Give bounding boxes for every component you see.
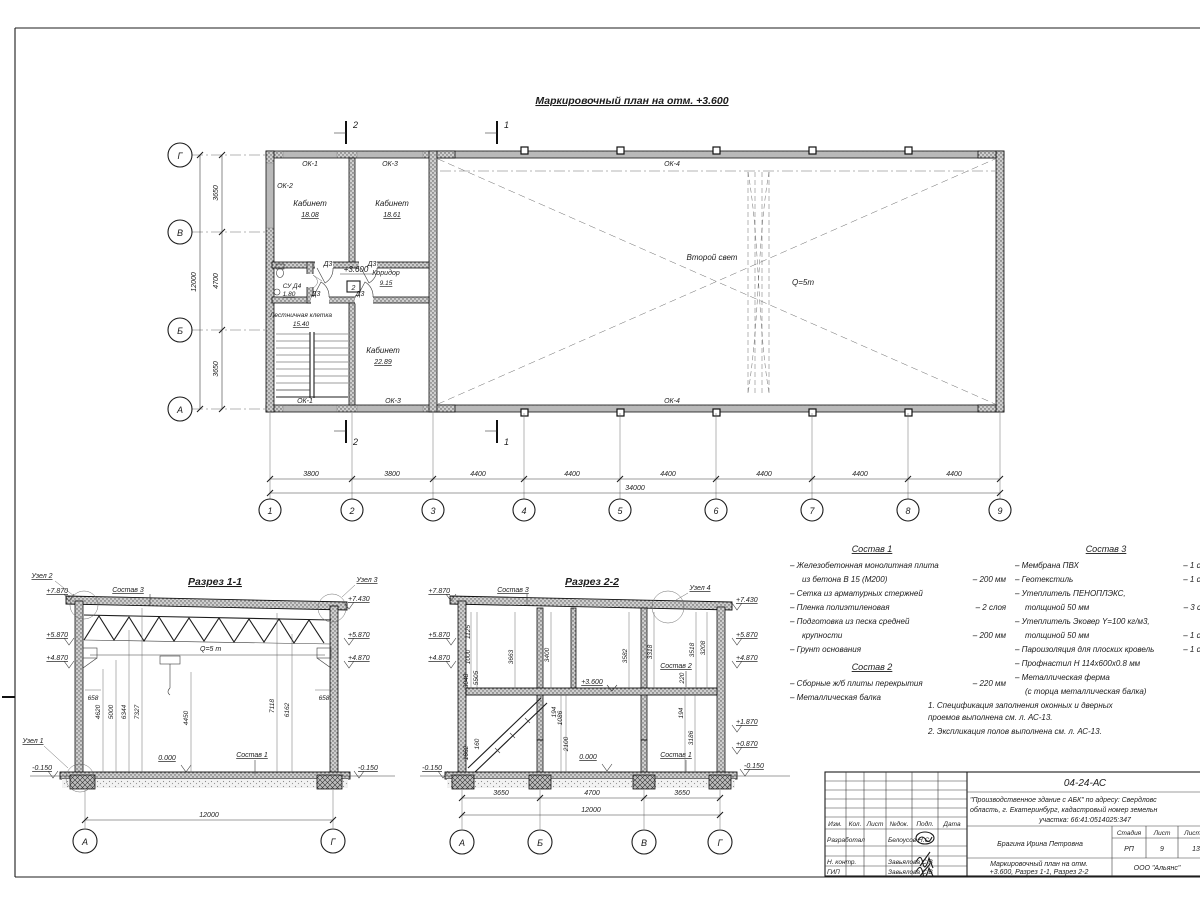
svg-text:2: 2 — [352, 120, 358, 130]
sec2-stairs — [468, 698, 547, 773]
svg-text:5505: 5505 — [473, 670, 480, 685]
svg-text:Коридор: Коридор — [372, 269, 400, 277]
sheets-header: Листов — [1183, 830, 1200, 837]
sec1-bottom-axes: 12000 А Г — [73, 790, 345, 853]
svg-text:1. Спецификация заполнения око: 1. Спецификация заполнения оконных и две… — [928, 701, 1114, 710]
svg-text:– Сборные ж/б плиты перекрытия: – Сборные ж/б плиты перекрытия — [789, 679, 923, 688]
sostav1-ref: Состав 1 — [236, 752, 268, 759]
col-data: Дата — [942, 821, 961, 828]
svg-text:18.08: 18.08 — [301, 212, 319, 219]
svg-text:+7.430: +7.430 — [348, 596, 370, 603]
svg-text:3208: 3208 — [700, 640, 707, 655]
svg-text:194: 194 — [678, 707, 685, 718]
role-gip: ГИП — [827, 869, 840, 876]
svg-text:– Пленка полиэтиленовая: – Пленка полиэтиленовая — [789, 603, 890, 612]
svg-text:+5.870: +5.870 — [428, 632, 450, 639]
svg-text:3650: 3650 — [213, 361, 220, 377]
svg-text:+4.870: +4.870 — [736, 655, 758, 662]
svg-text:– 220 мм: – 220 мм — [972, 679, 1007, 688]
col-kol: Кол. — [849, 821, 862, 828]
svg-text:3048: 3048 — [463, 673, 470, 688]
svg-text:658: 658 — [88, 695, 99, 702]
window-labels: ОК-1 ОК-3 ОК-2 ОК-4 ОК-1 ОК-3 ОК-4 — [277, 161, 680, 405]
svg-text:4700: 4700 — [213, 273, 220, 289]
section-mark-1-top: 1 — [485, 120, 509, 144]
svg-text:– Мембрана ПВХ: – Мембрана ПВХ — [1014, 561, 1080, 570]
svg-text:3518: 3518 — [689, 642, 696, 657]
svg-text:4: 4 — [521, 506, 526, 516]
axis-bubbles: 1 2 3 4 5 6 7 8 9 — [259, 499, 1011, 521]
svg-text:+5.870: +5.870 — [46, 632, 68, 639]
sec2-levels-left: +7.870 +5.870 +4.870 -0.150 — [422, 588, 456, 778]
plan-walls — [266, 151, 1004, 412]
sostav3-ref: Состав 3 — [112, 587, 144, 594]
spec-sostav-1: Состав 1 – Железобетонная монолитная пли… — [789, 544, 1007, 654]
svg-text:3318: 3318 — [647, 644, 654, 659]
svg-text:9.15: 9.15 — [380, 280, 393, 287]
project-line2: область, г. Екатеринбург, кадастровый но… — [970, 806, 1158, 814]
svg-text:Кабинет: Кабинет — [293, 199, 327, 208]
svg-text:Состав 1: Состав 1 — [660, 752, 692, 759]
svg-text:-0.150: -0.150 — [358, 765, 378, 772]
svg-text:А: А — [176, 405, 183, 415]
section-mark-2-top: 2 — [334, 120, 358, 144]
crane-beam: Q=5 т — [83, 646, 331, 695]
svg-text:– Металлическая ферма: – Металлическая ферма — [1014, 673, 1110, 682]
second-light-label: Второй свет — [687, 253, 738, 262]
role-developer: Разработал — [827, 836, 865, 844]
svg-text:– Пароизоляция для плоских кро: – Пароизоляция для плоских кровель — [1014, 645, 1154, 654]
svg-text:160: 160 — [474, 738, 481, 749]
svg-text:4400: 4400 — [660, 471, 676, 478]
svg-text:– 2 слоя: – 2 слоя — [975, 603, 1007, 612]
svg-text:6162: 6162 — [284, 702, 291, 717]
svg-text:ОК-1: ОК-1 — [297, 398, 313, 405]
svg-text:+5.870: +5.870 — [736, 632, 758, 639]
column-markers — [521, 147, 912, 416]
svg-text:проемов выполнена см. л. АС-13: проемов выполнена см. л. АС-13. — [928, 713, 1053, 722]
svg-text:2: 2 — [352, 437, 358, 447]
svg-text:+7.870: +7.870 — [46, 588, 68, 595]
stage-value: РП — [1124, 846, 1135, 853]
svg-text:4400: 4400 — [946, 471, 962, 478]
crane-capacity-label: Q=5т — [792, 278, 814, 287]
svg-text:12000: 12000 — [581, 807, 601, 814]
crane-label: Q=5 т — [200, 646, 221, 653]
svg-text:6344: 6344 — [121, 704, 128, 719]
mezzanine-slab — [466, 688, 717, 695]
svg-text:+4.870: +4.870 — [46, 655, 68, 662]
svg-text:1: 1 — [267, 506, 272, 516]
svg-text:+7.870: +7.870 — [428, 588, 450, 595]
svg-text:Д3: Д3 — [355, 291, 365, 298]
svg-text:8: 8 — [905, 506, 910, 516]
drawing-canvas: Маркировочный план на отм. +3.600 2 1 2 … — [0, 0, 1200, 900]
svg-text:– Подготовка из песка средней: – Подготовка из песка средней — [789, 617, 910, 626]
doc-title-line2: +3.600, Разрез 1-1, Разрез 2-2 — [990, 869, 1089, 876]
svg-text:3186: 3186 — [688, 730, 695, 745]
svg-text:ОК-4: ОК-4 — [664, 398, 680, 405]
svg-text:1: 1 — [504, 120, 509, 130]
svg-text:Лестничная клетка: Лестничная клетка — [269, 312, 332, 319]
svg-text:4400: 4400 — [756, 471, 772, 478]
svg-text:1.80: 1.80 — [283, 291, 296, 298]
svg-text:7327: 7327 — [134, 704, 141, 719]
spec2-title: Состав 2 — [852, 662, 893, 672]
svg-text:А: А — [81, 837, 88, 847]
svg-text:34000: 34000 — [625, 485, 645, 492]
spec3-title: Состав 3 — [1086, 544, 1127, 554]
svg-text:1086: 1086 — [557, 710, 564, 725]
svg-text:+1.870: +1.870 — [736, 719, 758, 726]
svg-text:4700: 4700 — [584, 790, 600, 797]
section-2-2: Разрез 2-2 Узел 4 Состав 3 Состав 2 Сост… — [420, 576, 790, 854]
svg-text:2100: 2100 — [563, 736, 570, 752]
svg-text:4620: 4620 — [95, 704, 102, 719]
svg-text:7118: 7118 — [269, 699, 276, 713]
svg-text:– 1 слой: – 1 слой — [1182, 561, 1200, 570]
section-1-1: Разрез 1-1 Q=5 т Узел 2 Узел 3 Узел 1 — [21, 573, 395, 853]
svg-text:– Грунт основания: – Грунт основания — [789, 645, 862, 654]
plan-level-mark: +3.600 2 — [340, 265, 374, 292]
svg-text:ОК-4: ОК-4 — [664, 161, 680, 168]
svg-text:Г: Г — [331, 837, 337, 847]
svg-text:– Утеплитель Эковер Y=100 кг/м: – Утеплитель Эковер Y=100 кг/м3, — [1014, 617, 1150, 626]
document-code: 04-24-АС — [1064, 778, 1107, 789]
spec-sostav-2: Состав 2 – Сборные ж/б плиты перекрытия … — [789, 662, 1007, 702]
svg-text:Б: Б — [177, 326, 183, 336]
svg-text:– 3 слоя: – 3 слоя — [1183, 603, 1200, 612]
svg-text:Состав 2: Состав 2 — [660, 663, 692, 670]
svg-text:крупности: крупности — [802, 631, 843, 640]
roof-slab-2 — [450, 596, 732, 610]
svg-text:2. Экспликация полов выполнена: 2. Экспликация полов выполнена см. л. АС… — [927, 727, 1102, 736]
svg-text:15.40: 15.40 — [293, 321, 310, 328]
svg-text:Г: Г — [178, 151, 184, 161]
svg-text:12000: 12000 — [199, 812, 219, 819]
svg-text:3650: 3650 — [674, 790, 690, 797]
spec-sostav-3: Состав 3 – Мембрана ПВХ – 1 слой – Геоте… — [1014, 544, 1200, 696]
svg-text:3800: 3800 — [303, 471, 319, 478]
project-line1: "Производственное здание с АБК" по адрес… — [970, 796, 1157, 804]
svg-text:ОК-3: ОК-3 — [385, 398, 401, 405]
svg-text:6: 6 — [713, 506, 718, 516]
svg-text:3650: 3650 — [213, 185, 220, 201]
svg-text:А: А — [458, 838, 465, 848]
svg-text:Состав 3: Состав 3 — [497, 587, 529, 594]
svg-text:18.61: 18.61 — [383, 212, 401, 219]
role-ncontrol: Н. контр. — [827, 859, 857, 866]
svg-text:– 200 мм: – 200 мм — [972, 575, 1007, 584]
svg-text:толщиной 50 мм: толщиной 50 мм — [1025, 603, 1090, 612]
svg-text:12000: 12000 — [191, 272, 198, 292]
sec2-levels-right: +7.430 +5.870 +4.870 +1.870 +0.870 -0.15… — [732, 597, 764, 776]
svg-text:ОК-3: ОК-3 — [382, 161, 398, 168]
svg-text:ОК-1: ОК-1 — [302, 161, 318, 168]
section-mark-2-bottom: 2 — [334, 420, 358, 447]
svg-text:Кабинет: Кабинет — [366, 346, 400, 355]
drawing-sheet: Маркировочный план на отм. +3.600 2 1 2 … — [0, 0, 1200, 900]
svg-text:В: В — [177, 228, 183, 238]
svg-text:-0.150: -0.150 — [744, 763, 764, 770]
svg-text:22.89: 22.89 — [373, 359, 392, 366]
chief-name: Брагина Ирина Петровна — [997, 841, 1083, 848]
svg-text:Узел 2: Узел 2 — [30, 573, 52, 580]
svg-text:2: 2 — [348, 506, 354, 516]
doc-title-line1: Маркировочный план на отм. — [990, 860, 1088, 868]
svg-text:+0.870: +0.870 — [736, 741, 758, 748]
svg-text:– Металлическая балка: – Металлическая балка — [789, 693, 881, 702]
svg-text:СУ Д4: СУ Д4 — [283, 283, 302, 290]
sheet-header: Лист — [1153, 830, 1171, 837]
svg-text:– 1 слой: – 1 слой — [1182, 575, 1200, 584]
svg-text:9: 9 — [997, 506, 1002, 516]
svg-text:4400: 4400 — [564, 471, 580, 478]
stairs — [276, 332, 348, 398]
svg-text:– Утеплитель ПЕНОПЛЭКС,: – Утеплитель ПЕНОПЛЭКС, — [1014, 589, 1126, 598]
svg-text:+4.870: +4.870 — [348, 655, 370, 662]
svg-text:1: 1 — [504, 437, 509, 447]
col-ndoc: №док. — [889, 820, 908, 828]
svg-text:3: 3 — [430, 506, 435, 516]
plan-axes-bottom: 3800 3800 4400 4400 4400 4400 4400 4400 … — [259, 413, 1011, 521]
node4-label: Узел 4 — [688, 585, 710, 592]
svg-text:– 1 слой: – 1 слой — [1182, 645, 1200, 654]
col-list: Лист — [866, 821, 884, 828]
section1-title: Разрез 1-1 — [188, 576, 242, 588]
svg-text:5: 5 — [617, 506, 623, 516]
svg-text:3582: 3582 — [622, 648, 629, 663]
svg-text:220: 220 — [679, 672, 686, 684]
spec1-title: Состав 1 — [852, 544, 893, 554]
title-block: Изм. Кол. Лист №док. Подп. Дата Разработ… — [825, 772, 1200, 877]
svg-text:-0.150: -0.150 — [32, 765, 52, 772]
svg-text:3650: 3650 — [493, 790, 509, 797]
svg-text:Д3: Д3 — [367, 261, 377, 268]
plan-windows — [267, 147, 997, 416]
plan-title: Маркировочный план на отм. +3.600 — [535, 95, 728, 107]
svg-text:– Железобетонная монолитная п: – Железобетонная монолитная плита — [789, 561, 939, 570]
sec2-zero: 0.000 — [579, 754, 597, 761]
svg-text:из бетона В 15 (М200): из бетона В 15 (М200) — [802, 575, 888, 584]
organization: ООО "Альянс" — [1134, 865, 1181, 872]
sec1-levels-right: +7.430 +5.870 +4.870 -0.150 — [344, 596, 378, 778]
svg-text:В: В — [641, 838, 647, 848]
stage-header: Стадия — [1117, 829, 1142, 837]
svg-text:-0.150: -0.150 — [422, 765, 442, 772]
plan-axes-left: Г В Б А 3650 4700 3650 12000 — [168, 143, 266, 421]
crane-runway — [748, 172, 769, 393]
svg-text:+7.430: +7.430 — [736, 597, 758, 604]
svg-text:– 200 мм: – 200 мм — [972, 631, 1007, 640]
floor-plan: Маркировочный план на отм. +3.600 2 1 2 … — [168, 95, 1011, 521]
svg-text:– Геотекстиль: – Геотекстиль — [1014, 575, 1073, 584]
roof-slab — [66, 596, 347, 610]
svg-text:Д3: Д3 — [311, 291, 321, 298]
svg-text:1000: 1000 — [465, 649, 472, 664]
svg-text:1125: 1125 — [465, 625, 472, 639]
svg-text:+4.870: +4.870 — [428, 655, 450, 662]
svg-text:Б: Б — [537, 838, 543, 848]
svg-text:Д3: Д3 — [323, 261, 333, 268]
svg-text:7: 7 — [809, 506, 815, 516]
svg-text:Узел 1: Узел 1 — [21, 738, 43, 745]
svg-text:Кабинет: Кабинет — [375, 199, 409, 208]
project-line3: участка: 66:41:0514025:347 — [1038, 817, 1132, 824]
svg-text:– Профнастил Н 114х600х0.8 мм: – Профнастил Н 114х600х0.8 мм — [1014, 659, 1141, 668]
sheet-value: 9 — [1160, 846, 1164, 853]
svg-text:+5.870: +5.870 — [348, 632, 370, 639]
section-mark-1-bottom: 1 — [485, 420, 509, 447]
col-podp: Подп. — [916, 820, 933, 828]
svg-text:(с торца металлическая балка): (с торца металлическая балка) — [1025, 687, 1147, 696]
col-izm: Изм. — [828, 821, 842, 828]
sec2-level-mark: +3.600 — [581, 679, 603, 686]
svg-text:3400: 3400 — [544, 647, 551, 662]
svg-text:4400: 4400 — [852, 471, 868, 478]
svg-text:Узел 3: Узел 3 — [355, 577, 377, 584]
svg-text:Г: Г — [718, 838, 724, 848]
svg-text:3800: 3800 — [384, 471, 400, 478]
svg-text:толщиной 50 мм: толщиной 50 мм — [1025, 631, 1090, 640]
svg-text:1662: 1662 — [463, 745, 470, 760]
sheets-value: 13 — [1192, 846, 1200, 853]
section2-title: Разрез 2-2 — [565, 576, 619, 588]
svg-text:ОК-2: ОК-2 — [277, 183, 293, 190]
svg-text:4450: 4450 — [183, 710, 190, 725]
notes: 1. Спецификация заполнения оконных и две… — [927, 701, 1114, 736]
svg-text:– Сетка из арматурных стержней: – Сетка из арматурных стержней — [789, 589, 923, 598]
hall-markings: Второй свет Q=5т — [438, 159, 995, 404]
svg-text:– 1 слой: – 1 слой — [1182, 631, 1200, 640]
sec1-levels-left: +7.870 +5.870 +4.870 -0.150 — [32, 588, 74, 778]
svg-text:+3.600: +3.600 — [344, 265, 369, 274]
svg-text:5000: 5000 — [108, 704, 115, 719]
zero-level: 0.000 — [158, 755, 176, 762]
svg-text:3663: 3663 — [508, 649, 515, 664]
sec2-bottom-axes: 3650 4700 3650 12000 А Б В Г — [450, 790, 732, 854]
svg-text:658: 658 — [319, 695, 330, 702]
svg-text:4400: 4400 — [470, 471, 486, 478]
truss — [84, 615, 331, 644]
